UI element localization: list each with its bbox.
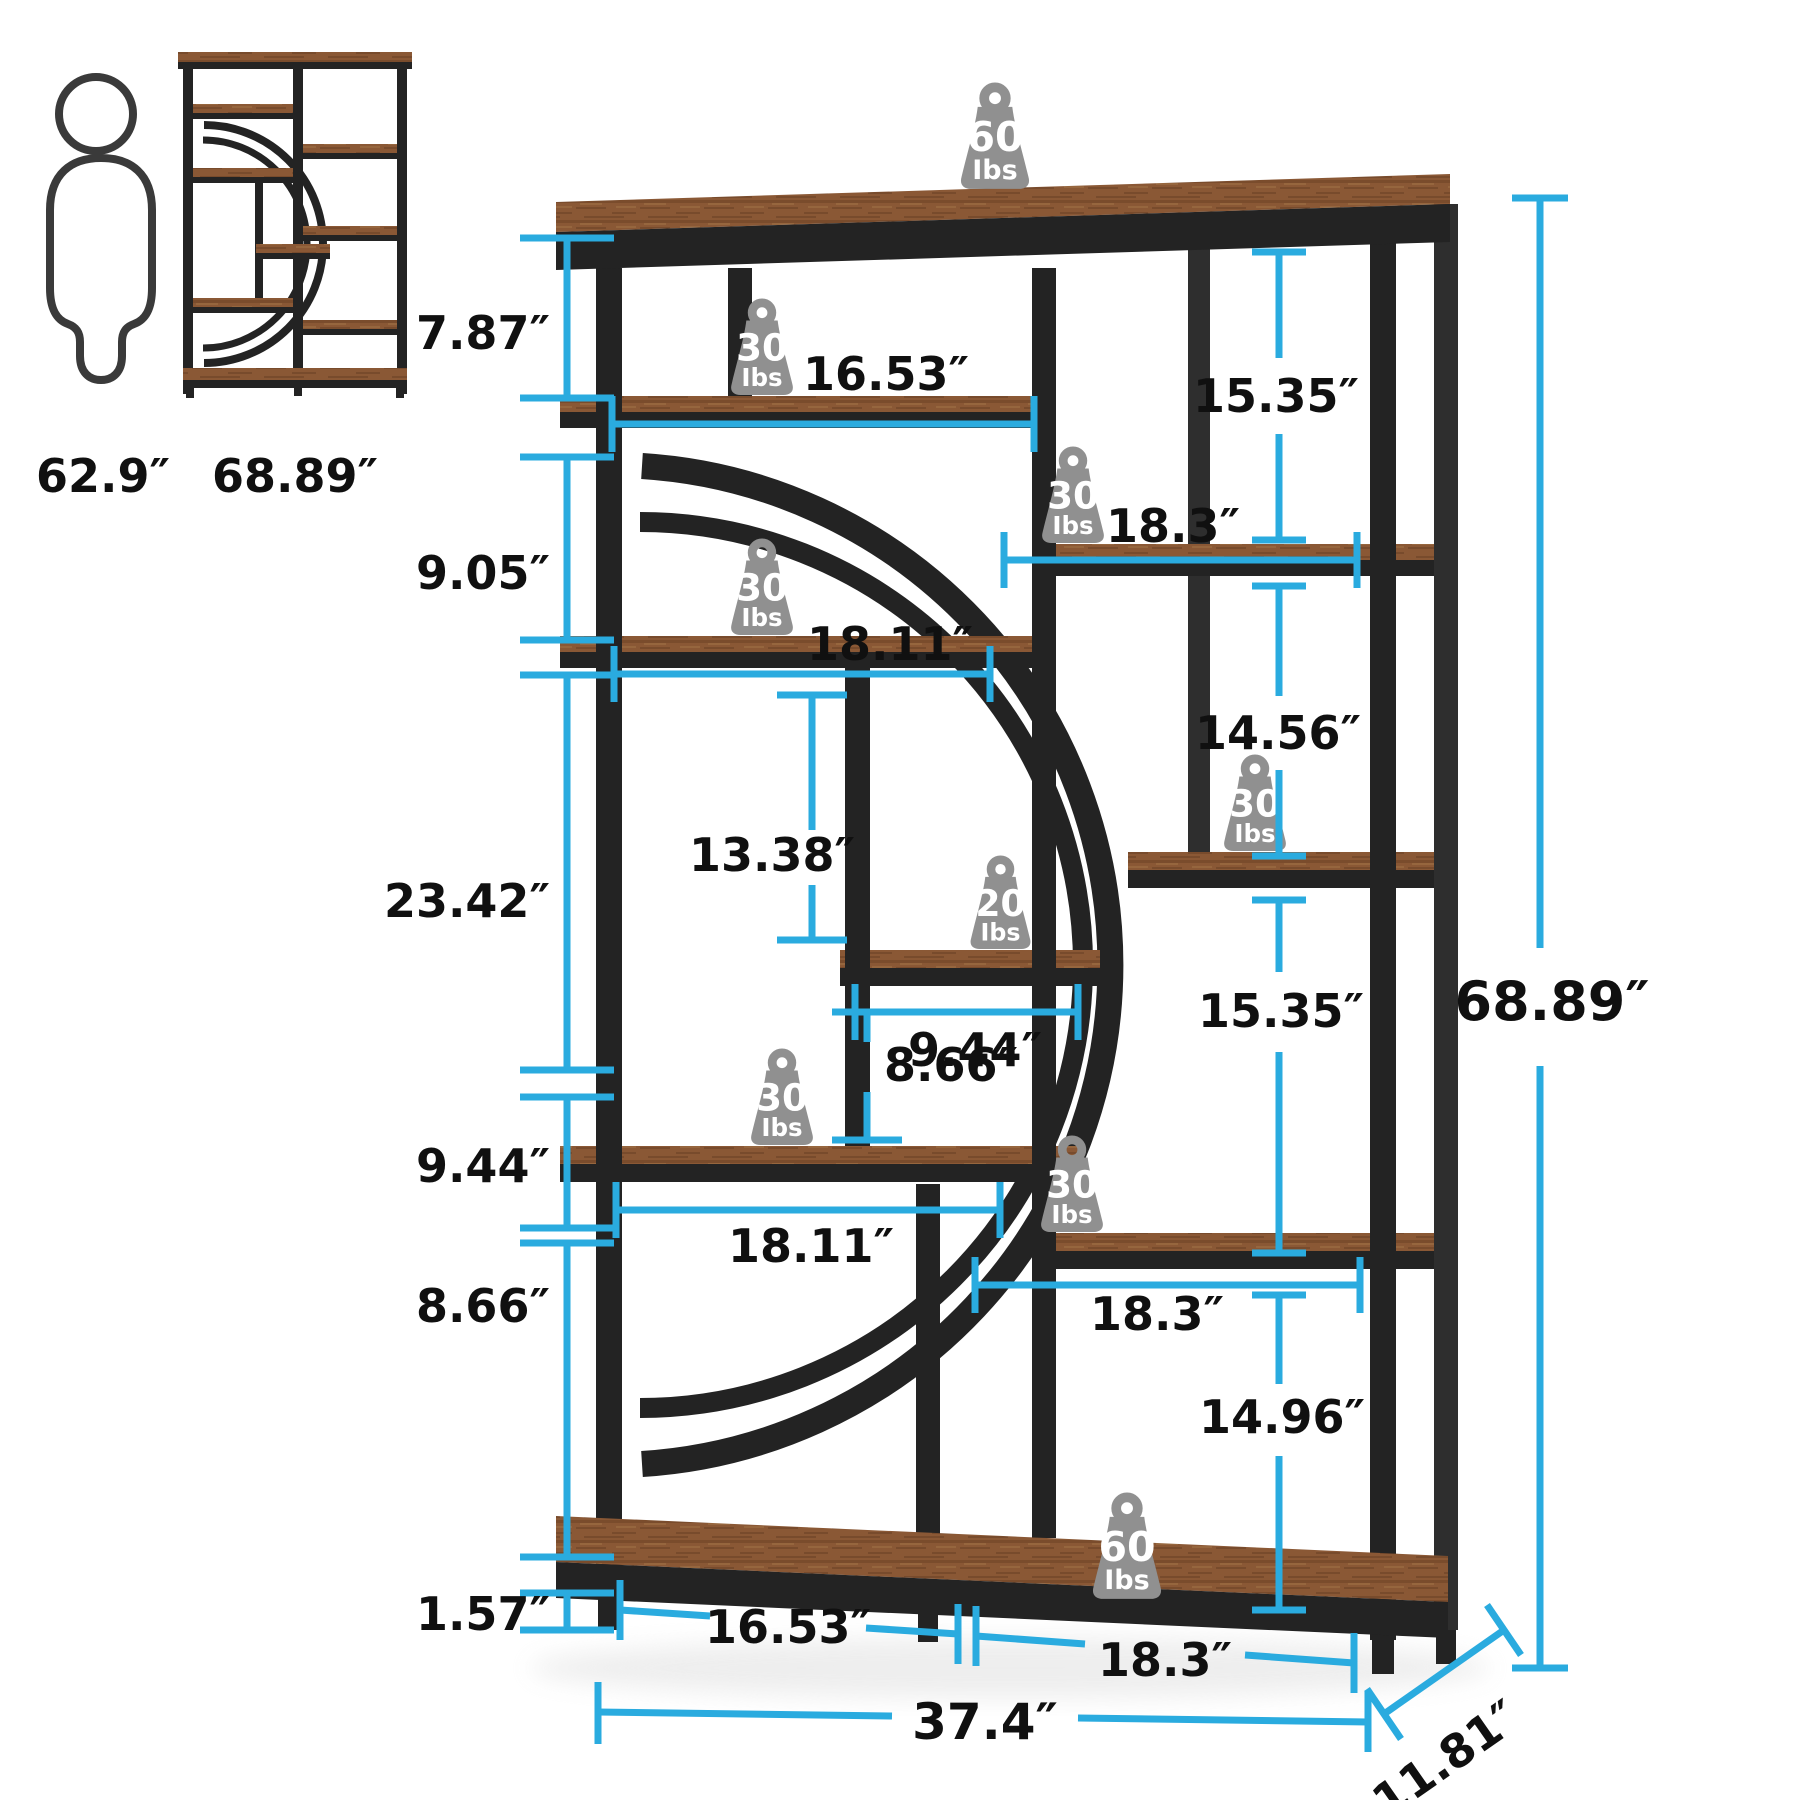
dim-left-1: 7.87″ — [416, 306, 550, 360]
dim-right-2: 14.56″ — [1195, 706, 1361, 760]
shelf-tier5 — [840, 950, 1100, 986]
post-center — [1032, 268, 1056, 1538]
dim-overall-height: 68.89″ — [1455, 970, 1650, 1033]
weight-value: 60 — [966, 113, 1023, 161]
dim-shelf-tier7: 18.11″ — [728, 1219, 894, 1273]
overall-height-dimension: 68.89″ — [1455, 198, 1650, 1668]
weight-icon-tier7: 30Ibs — [751, 1053, 813, 1145]
dim-right-3: 15.35″ — [1198, 984, 1364, 1038]
weight-unit: Ibs — [1052, 511, 1093, 540]
weight-unit: Ibs — [1234, 819, 1275, 848]
foot-center — [918, 1612, 938, 1642]
weight-icon-tier4: 30Ibs — [731, 543, 793, 635]
weight-unit: Ibs — [741, 363, 782, 392]
weight-unit: Ibs — [981, 919, 1021, 947]
dim-middle-2: 8.66″ — [884, 1038, 1018, 1092]
weight-icon-tier5: 20Ibs — [971, 860, 1031, 949]
post-bottom-divider — [916, 1184, 940, 1578]
weight-value: 60 — [1098, 1523, 1155, 1571]
weight-icon-top: 60Ibs — [961, 87, 1029, 189]
dim-overall-width: 37.4″ — [912, 1693, 1058, 1751]
dim-shelf-tier8: 18.3″ — [1090, 1287, 1224, 1341]
weight-unit: Ibs — [972, 155, 1017, 186]
dim-left-4: 9.44″ — [416, 1139, 550, 1193]
dim-bottom-right-section: 18.3″ — [1098, 1633, 1232, 1687]
post-middle-support — [845, 668, 870, 1146]
dim-left-3: 23.42″ — [384, 874, 550, 928]
dim-depth: 11.81″ — [1362, 1689, 1529, 1800]
foot-right-front — [1372, 1638, 1394, 1674]
weight-unit: Ibs — [1051, 1200, 1092, 1229]
scale-reference-group: 62.9″ 68.89″ — [36, 52, 412, 503]
dim-right-1: 15.35″ — [1193, 369, 1359, 423]
post-right-back — [1434, 204, 1458, 1630]
floor-shadow — [530, 1638, 1490, 1698]
dim-right-4: 14.96″ — [1199, 1390, 1365, 1444]
post-right-front — [1370, 240, 1396, 1640]
diagram-canvas: 62.9″ 68.89″ — [0, 0, 1800, 1800]
person-head-icon — [59, 77, 133, 151]
foot-right-back — [1436, 1630, 1456, 1664]
dim-shelf-tier4: 18.11″ — [807, 617, 973, 671]
weight-icon-bottom: 60Ibs — [1093, 1497, 1161, 1599]
weight-unit: Ibs — [1104, 1565, 1149, 1596]
mini-bookcase-icon — [178, 52, 412, 398]
person-body-icon — [50, 158, 152, 380]
person-height-label: 62.9″ — [36, 449, 170, 503]
dim-left-2: 9.05″ — [416, 546, 550, 600]
post-left-outer — [596, 268, 622, 1598]
dim-left-5: 8.66″ — [416, 1279, 550, 1333]
weight-unit: Ibs — [761, 1113, 802, 1142]
mini-bookcase-height-label: 68.89″ — [212, 449, 378, 503]
shelf-tier7 — [560, 1146, 1082, 1182]
dim-shelf-tier3: 18.3″ — [1106, 499, 1240, 553]
dim-bottom-left-section: 16.53″ — [705, 1600, 871, 1654]
dim-left-6: 1.57″ — [416, 1587, 550, 1641]
product-dimension-diagram: 62.9″ 68.89″ — [0, 0, 1800, 1800]
left-dimension-brackets: 7.87″ 9.05″ 23.42″ 9.44″ 8.66″ 1.57″ — [384, 238, 614, 1641]
weight-unit: Ibs — [741, 603, 782, 632]
dim-middle-1: 13.38″ — [689, 828, 855, 882]
inner-right-dimension-brackets: 15.35″ 14.56″ 15.35″ 14.96″ — [1193, 252, 1365, 1610]
dim-shelf-tier2: 16.53″ — [803, 347, 969, 401]
